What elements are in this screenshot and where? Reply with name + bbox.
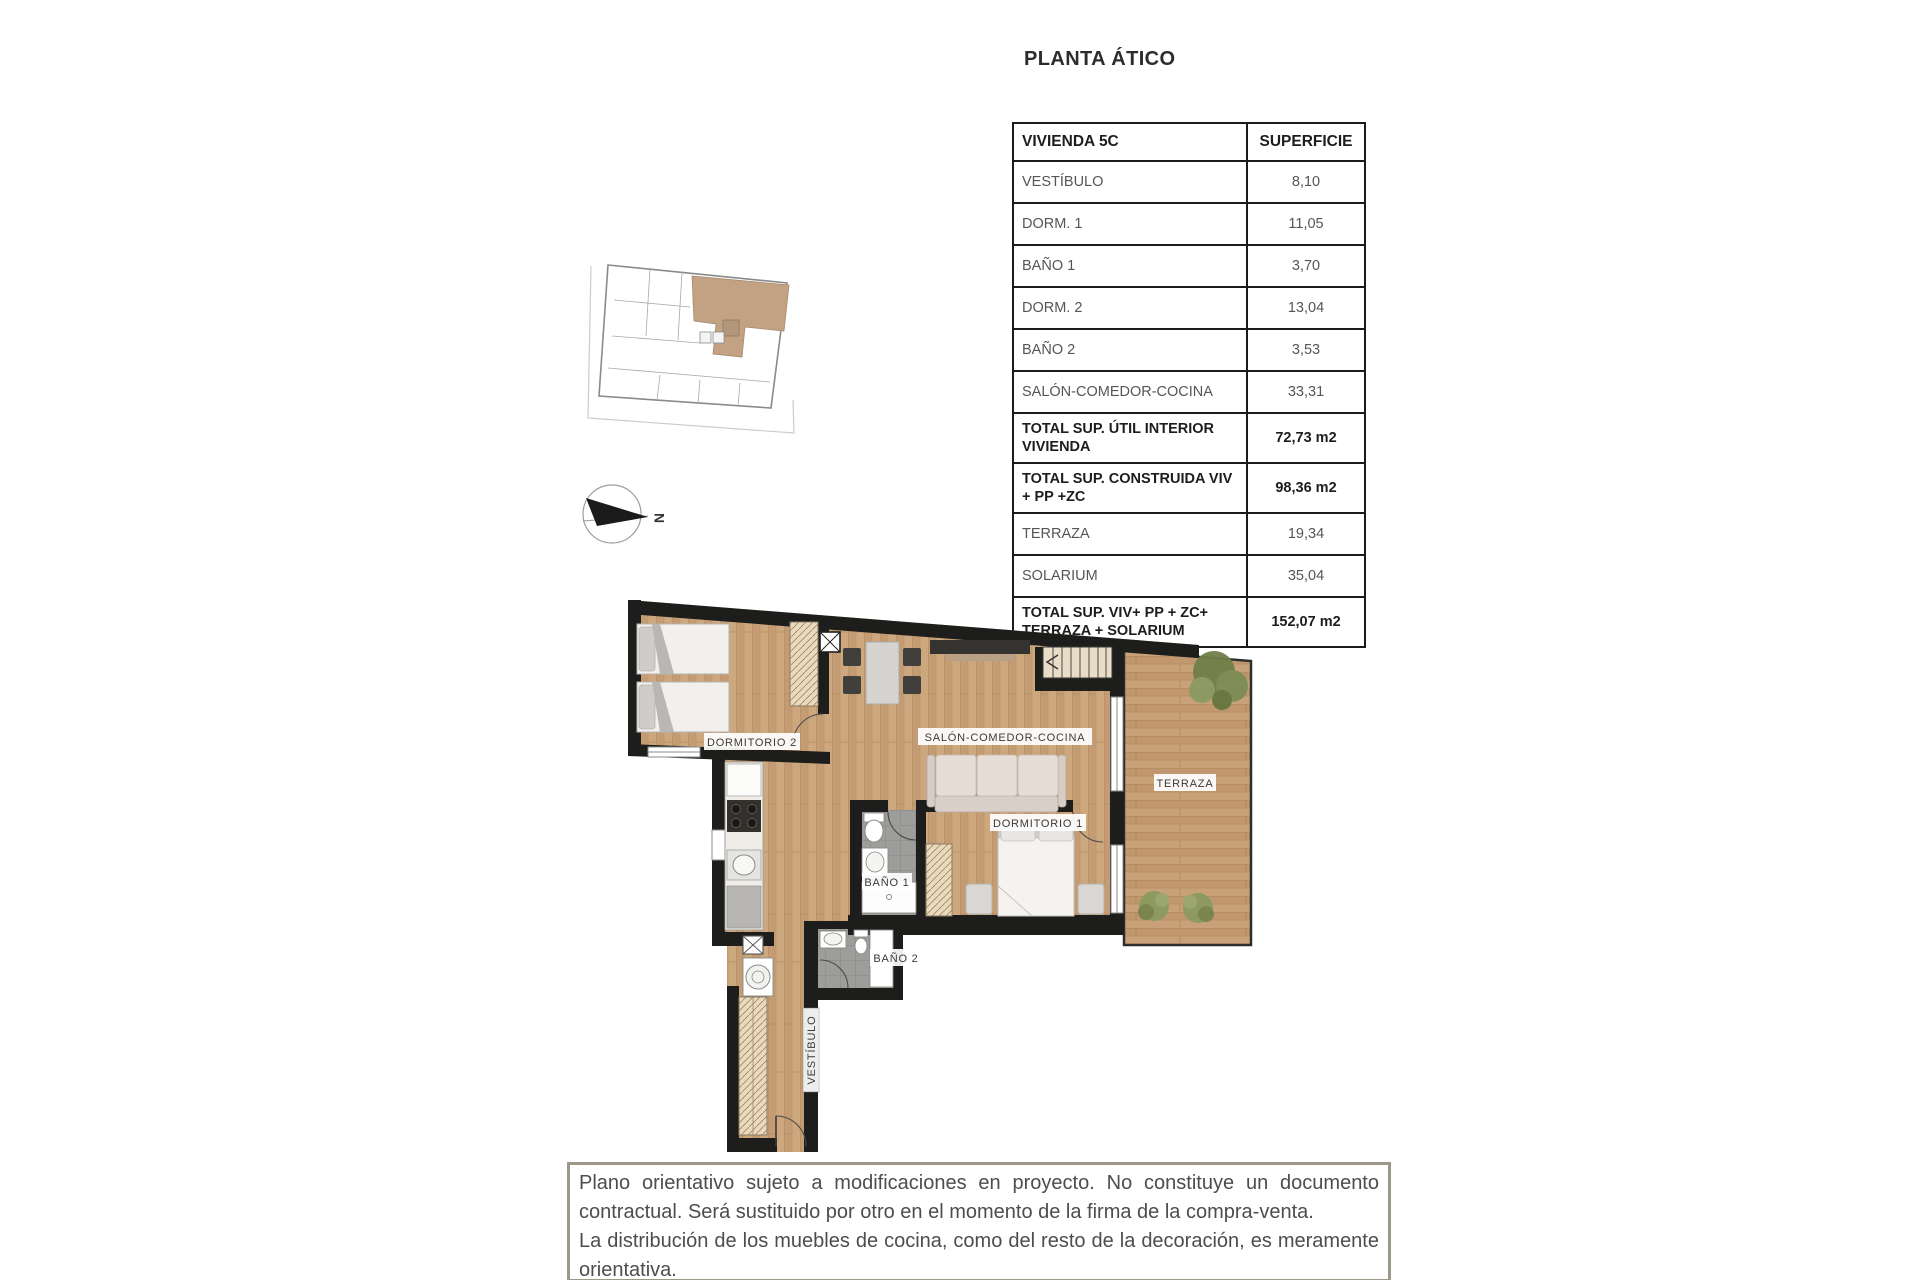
washer	[743, 958, 773, 996]
window-kitchen	[712, 830, 725, 860]
label-dormitorio-1: DORMITORIO 1	[993, 818, 1083, 830]
sofa	[927, 755, 1066, 812]
table-row: DORM. 111,05	[1013, 203, 1365, 245]
table-row: DORM. 213,04	[1013, 287, 1365, 329]
label-bano-2: BAÑO 2	[873, 952, 918, 965]
table-header-unit: VIVIENDA 5C	[1013, 123, 1247, 161]
label-dormitorio-2: DORMITORIO 2	[707, 737, 797, 749]
table-row: VESTÍBULO8,10	[1013, 161, 1365, 203]
table-header-superficie: SUPERFICIE	[1247, 123, 1365, 161]
single-bed	[637, 682, 729, 732]
table-row: BAÑO 23,53	[1013, 329, 1365, 371]
label-salon: SALÓN-COMEDOR-COCINA	[925, 731, 1086, 744]
nightstand	[1078, 884, 1104, 914]
plan-sheet: PLANTA ÁTICO VIVIENDA 5C SUPERFICIE VEST…	[0, 0, 1920, 1280]
disclaimer-paragraph: Plano orientativo sujeto a modificacione…	[579, 1169, 1379, 1227]
north-compass: N	[556, 466, 690, 570]
double-bed	[998, 826, 1074, 916]
label-terraza: TERRAZA	[1157, 778, 1214, 790]
chair	[903, 676, 921, 694]
label-bano-1: BAÑO 1	[864, 876, 909, 889]
bathroom-sink	[862, 848, 888, 876]
disclaimer-paragraph: La distribución de los muebles de cocina…	[579, 1227, 1379, 1280]
chair	[843, 676, 861, 694]
table-row: SALÓN-COMEDOR-COCINA33,31	[1013, 371, 1365, 413]
stairs	[1043, 647, 1112, 678]
kitchen-sink	[727, 850, 761, 880]
area-table: VIVIENDA 5C SUPERFICIE VESTÍBULO8,10 DOR…	[1012, 122, 1366, 648]
wardrobe	[790, 622, 818, 706]
north-label: N	[651, 513, 667, 523]
table-header-row: VIVIENDA 5C SUPERFICIE	[1013, 123, 1365, 161]
label-vestibulo: VESTÍBULO	[805, 1016, 818, 1085]
stove	[727, 800, 761, 832]
key-plan	[556, 246, 820, 446]
appliance-icon	[743, 936, 763, 954]
single-bed	[637, 624, 729, 674]
disclaimer-box: Plano orientativo sujeto a modificacione…	[567, 1162, 1391, 1280]
floor-plan: DORMITORIO 2 SALÓN-COMEDOR-COCINA TERRAZ…	[600, 585, 1280, 1170]
kitchen	[725, 762, 763, 930]
toilet	[854, 930, 868, 954]
table-row: TERRAZA19,34	[1013, 513, 1365, 555]
shaft-icon	[820, 632, 840, 652]
core-shaft	[723, 320, 739, 336]
chair	[843, 648, 861, 666]
page-title: PLANTA ÁTICO	[1024, 48, 1175, 71]
table-row: BAÑO 13,70	[1013, 245, 1365, 287]
bathroom-sink	[820, 931, 846, 948]
kitchen-cabinet	[727, 886, 761, 928]
table-row-total-construida: TOTAL SUP. CONSTRUIDA VIV + PP +ZC98,36 …	[1013, 463, 1365, 513]
fridge	[727, 764, 761, 796]
nightstand	[966, 884, 992, 914]
wardrobe	[926, 844, 952, 916]
dining-table	[866, 642, 899, 704]
chair	[903, 648, 921, 666]
toilet	[864, 813, 884, 842]
table-row-total-util: TOTAL SUP. ÚTIL INTERIOR VIVIENDA72,73 m…	[1013, 413, 1365, 463]
